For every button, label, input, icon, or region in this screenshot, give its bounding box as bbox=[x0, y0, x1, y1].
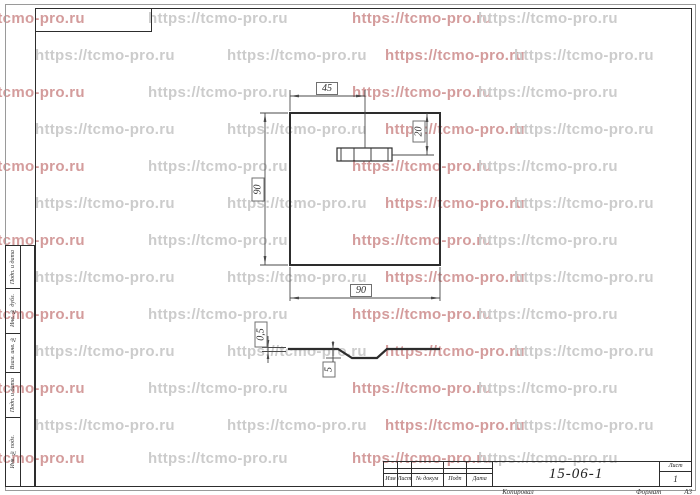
sheet-number: 1 bbox=[660, 472, 691, 487]
strip-cell: Взам. инв. № bbox=[6, 334, 21, 373]
dim-plate-height: 90 bbox=[252, 177, 265, 201]
format-note: Формат А3 bbox=[636, 488, 692, 495]
col-label: Подп bbox=[448, 476, 461, 486]
strip-label: Взам. инв. № bbox=[10, 336, 16, 369]
sheet-label: Лист bbox=[660, 462, 691, 472]
revision-col-sign: Подп bbox=[444, 462, 468, 486]
revision-col-izm: Изм bbox=[384, 462, 398, 486]
dim-emboss-depth: 5 bbox=[323, 361, 336, 377]
left-margin-strip: Подп. и дата Инв. № дубл. Взам. инв. № П… bbox=[5, 245, 35, 487]
revision-table: Изм Лист № докум Подп Дата bbox=[384, 462, 493, 486]
col-label: № докум bbox=[416, 476, 438, 486]
designation-field: 15-06-1 bbox=[493, 462, 660, 486]
dim-slot-top-offset: 20 bbox=[413, 120, 426, 142]
revision-col-list: Лист bbox=[398, 462, 412, 486]
dim-sheet-thickness: 0,5 bbox=[255, 321, 268, 347]
col-label: Лист bbox=[397, 476, 411, 486]
col-label: Изм bbox=[385, 476, 395, 486]
section-profile bbox=[288, 349, 440, 358]
strip-cell: Подп. и дата bbox=[6, 373, 21, 418]
col-label: Дата bbox=[473, 476, 487, 486]
strip-cell: Инв. № подл. bbox=[6, 418, 21, 486]
strip-cell: Инв. № дубл. bbox=[6, 289, 21, 334]
title-block: Изм Лист № докум Подп Дата 15-06-1 Лист … bbox=[383, 461, 692, 487]
drawing-sheet: https://tcmo-pro.ruhttps://tcmo-pro.ruht… bbox=[0, 0, 700, 495]
strip-label: Подп. и дата bbox=[10, 250, 16, 284]
drawing-canvas bbox=[0, 0, 700, 495]
revision-col-date: Дата bbox=[467, 462, 492, 486]
format-value: А3 bbox=[684, 488, 692, 495]
strip-cell: Подп. и дата bbox=[6, 246, 21, 289]
format-label: Формат bbox=[636, 488, 661, 495]
revision-col-docnum: № докум bbox=[412, 462, 444, 486]
drawing-designation: 15-06-1 bbox=[549, 466, 604, 483]
top-left-stamp-box bbox=[35, 8, 152, 32]
strip-label: Инв. № подл. bbox=[10, 435, 16, 469]
copied-note: Копировал bbox=[487, 488, 549, 495]
louver-slot bbox=[337, 148, 392, 161]
strip-label: Подп. и дата bbox=[10, 378, 16, 412]
sheet-box: Лист 1 bbox=[660, 462, 691, 486]
dim-slot-offset: 45 bbox=[316, 82, 338, 95]
strip-label: Инв. № дубл. bbox=[10, 294, 16, 327]
dim-plate-width: 90 bbox=[350, 284, 372, 297]
